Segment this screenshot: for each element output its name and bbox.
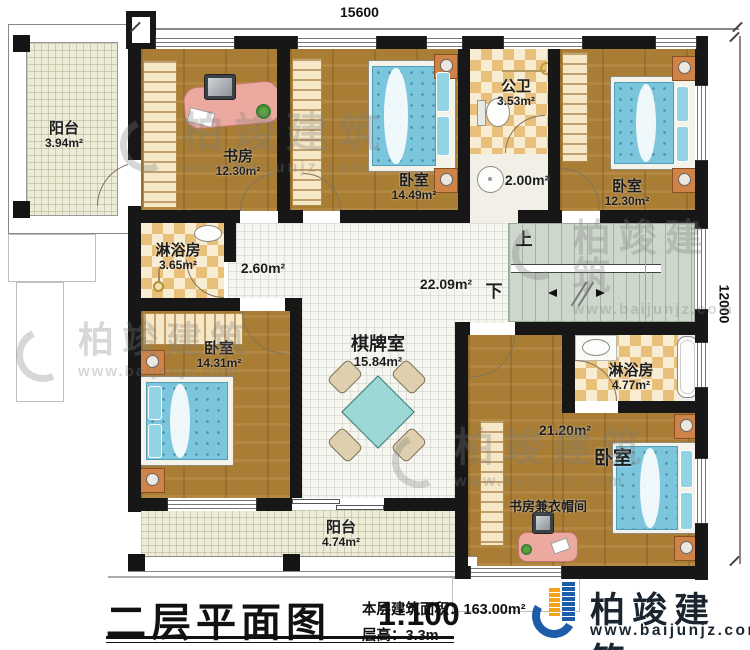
room-area: 12.30m² <box>605 195 650 209</box>
lamp <box>440 173 453 186</box>
plan-title: 二层平面图 <box>106 590 331 648</box>
wall <box>515 322 695 335</box>
window <box>297 36 377 49</box>
room-area: 3.65m² <box>155 259 200 273</box>
railing-post <box>13 35 30 52</box>
lamp <box>146 355 159 368</box>
balcony-bottom-railing <box>128 556 478 572</box>
brand-website: www.baijunjz.com <box>590 622 750 640</box>
room-label-bedroom-left: 卧室 14.31m² <box>197 340 242 371</box>
wall <box>278 210 303 223</box>
room-name: 淋浴房 <box>608 362 653 379</box>
room-label-public-bath: 公卫 3.53m² <box>497 78 535 109</box>
wall <box>128 210 240 223</box>
room-label-balcony-bottom: 阳台 4.74m² <box>322 519 360 550</box>
balcony-bottom-floor <box>141 510 465 556</box>
wall <box>455 322 470 335</box>
room-name: 卧室 <box>605 178 650 195</box>
room-area: 2.60m² <box>241 260 285 276</box>
pillow <box>148 386 162 420</box>
wall <box>290 311 302 498</box>
window <box>695 342 708 388</box>
wall <box>562 335 575 401</box>
logo-building-orange <box>549 588 560 616</box>
window <box>503 36 583 49</box>
room-area: 22.09m² <box>420 276 472 292</box>
room-name: 棋牌室 <box>351 334 405 355</box>
wall <box>562 566 708 579</box>
plant <box>521 544 532 555</box>
room-label-shower-left: 淋浴房 3.65m² <box>155 242 200 273</box>
bed-sheet <box>636 84 656 162</box>
porch-line <box>108 576 474 578</box>
lamp <box>678 173 691 186</box>
window <box>167 498 257 511</box>
room-label-bedroom-br-area: 21.20m² <box>539 422 591 438</box>
railing-post <box>13 201 30 218</box>
room-label-corridor: 2.60m² <box>241 260 285 276</box>
window <box>655 36 697 49</box>
pillow <box>676 126 689 162</box>
wall <box>128 36 141 160</box>
room-name: 卧室 <box>392 172 437 189</box>
room-name: 公卫 <box>497 78 535 95</box>
stair-rail <box>511 264 661 273</box>
lamp <box>678 61 691 74</box>
dimension-width: 15600 <box>340 4 379 20</box>
bed-sheet <box>640 448 660 528</box>
room-name: 卧室 <box>197 340 242 357</box>
washbasin <box>582 339 610 356</box>
room-area: 15.84m² <box>351 355 405 370</box>
stairs-up-label: 上 <box>516 230 533 250</box>
railing-post <box>128 554 145 571</box>
window <box>426 36 463 49</box>
window <box>695 85 708 161</box>
pillow <box>436 72 450 112</box>
wall <box>600 210 708 223</box>
stairs-down-label: 下 <box>486 282 503 302</box>
lamp <box>146 473 159 486</box>
floor-plan-canvas: 15600 12000 <box>0 0 750 650</box>
drain <box>488 177 492 181</box>
computer <box>532 512 554 534</box>
logo-building-blue <box>562 582 575 622</box>
stair-arrow-right <box>596 289 605 297</box>
stair-arrow-left <box>548 289 557 297</box>
room-label-hall: 22.09m² <box>420 276 472 292</box>
pillow <box>148 424 162 458</box>
wall <box>128 206 141 512</box>
roof-edge <box>16 282 64 402</box>
room-name: 淋浴房 <box>155 242 200 259</box>
wall <box>455 566 470 579</box>
wall <box>128 298 240 311</box>
sliding-door <box>292 499 340 504</box>
room-name: 卧室 <box>594 448 632 470</box>
window <box>695 228 708 310</box>
pillow <box>680 492 693 530</box>
room-area: 14.49m² <box>392 189 437 203</box>
room-area: 3.94m² <box>45 137 83 151</box>
wall <box>277 36 290 211</box>
lamp <box>680 541 693 554</box>
wall <box>257 498 292 511</box>
room-label-balcony-tl: 阳台 3.94m² <box>45 120 83 151</box>
floor-area-text: 本层建筑面积：163.00m² <box>362 598 526 619</box>
room-area: 4.74m² <box>322 536 360 550</box>
wall <box>695 310 708 342</box>
flue-inner <box>132 17 150 43</box>
wardrobe <box>480 420 504 546</box>
floor-height-text: 层高：3.3m <box>362 624 439 645</box>
room-label-bedroom-br: 卧室 <box>594 448 632 470</box>
shower-head <box>153 281 164 292</box>
door-gap <box>128 160 141 206</box>
wall <box>384 498 468 511</box>
room-name: 阳台 <box>322 519 360 536</box>
room-label-cloakroom: 书房兼衣帽间 <box>509 500 587 515</box>
pillow <box>680 450 693 488</box>
computer-screen <box>208 78 232 96</box>
room-name: 书房兼衣帽间 <box>509 500 587 515</box>
dimension-height: 12000 <box>716 285 732 324</box>
room-label-wash-area: 2.00m² <box>505 172 549 188</box>
brand-logo <box>532 580 584 644</box>
room-label-shower-right: 淋浴房 4.77m² <box>608 362 653 393</box>
room-area: 14.31m² <box>197 357 242 371</box>
room-label-bedroom-topright: 卧室 12.30m² <box>605 178 650 209</box>
stair-landing-line <box>645 223 646 322</box>
window <box>695 458 708 524</box>
computer <box>204 74 236 100</box>
railing-post <box>283 554 300 571</box>
roof-edge <box>8 234 96 282</box>
window <box>155 36 235 49</box>
wall <box>458 36 470 223</box>
bathtub-inner <box>680 340 695 394</box>
washbasin <box>194 225 222 242</box>
window <box>470 566 562 579</box>
pillow <box>676 86 689 122</box>
room-label-chess: 棋牌室 15.84m² <box>351 334 405 370</box>
room-name: 书房 <box>216 148 261 165</box>
wall <box>224 223 236 262</box>
sliding-door <box>336 505 384 510</box>
wall <box>340 210 458 223</box>
bed-sheet <box>384 68 408 164</box>
wardrobe <box>562 52 588 162</box>
room-label-bedroom-top: 卧室 14.49m² <box>392 172 437 203</box>
room-area: 3.53m² <box>497 95 535 109</box>
pillow <box>436 116 450 156</box>
room-area: 4.77m² <box>608 379 653 393</box>
wall <box>562 401 575 413</box>
toilet-tank <box>477 100 486 126</box>
wall <box>285 298 302 311</box>
room-name: 阳台 <box>45 120 83 137</box>
plant <box>256 104 271 119</box>
wall <box>548 36 560 223</box>
wardrobe <box>143 60 177 208</box>
wall <box>618 401 708 413</box>
dimension-line-right <box>739 36 741 564</box>
lamp <box>680 419 693 432</box>
wall <box>128 498 167 511</box>
bed-sheet <box>170 384 190 458</box>
lamp <box>440 59 453 72</box>
wall <box>695 388 708 458</box>
dimension-line-top <box>135 28 739 30</box>
computer-screen <box>536 516 550 530</box>
room-label-study: 书房 12.30m² <box>216 148 261 179</box>
room-area: 21.20m² <box>539 422 591 438</box>
room-area: 2.00m² <box>505 172 549 188</box>
wall <box>455 326 468 566</box>
room-area: 12.30m² <box>216 165 261 179</box>
